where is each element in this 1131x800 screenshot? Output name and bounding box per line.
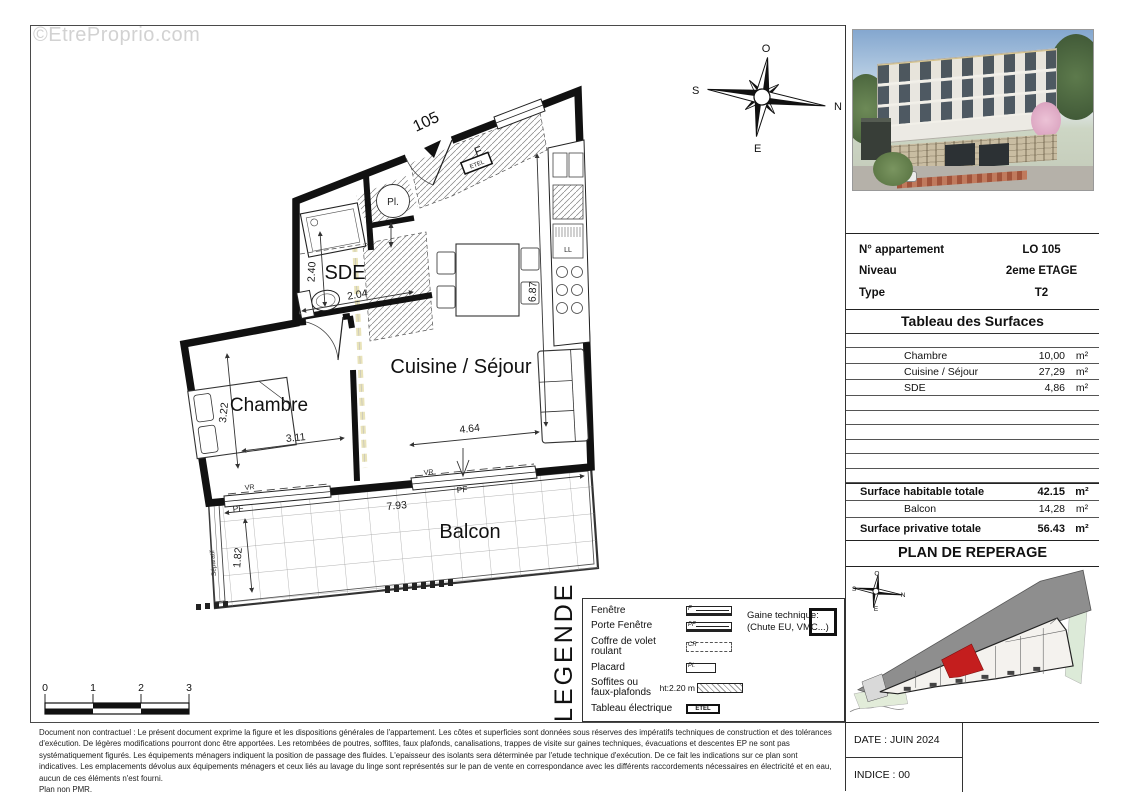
fridge	[553, 185, 583, 219]
washer: LL	[553, 224, 583, 258]
footer-left: DATE : JUIN 2024 INDICE : 00	[846, 723, 963, 792]
label-cuisine-sejour: Cuisine / Séjour	[390, 356, 532, 378]
total-unit: m²	[1065, 486, 1099, 498]
compass-rose: O N S E	[692, 43, 842, 155]
surface-unit: m²	[1065, 366, 1099, 378]
disclaimer-box: Document non contractuel : Le présent do…	[30, 722, 845, 791]
legend-label: Soffites ou faux-plafonds	[591, 678, 660, 698]
shutter-box-symbol: CR	[686, 642, 732, 652]
dim-balcon-w: 7.93	[386, 499, 408, 513]
garage-entrance	[945, 143, 975, 167]
dim-sde-h: 2.40	[305, 261, 318, 282]
symbol-letter: Pl.	[688, 663, 695, 669]
legend-item: Porte Fenêtre PF	[591, 621, 743, 631]
dining-table	[437, 244, 539, 316]
duct-symbol	[809, 608, 837, 636]
legend-box: Fenêtre F Porte Fenêtre PF Coffre de vol…	[582, 598, 845, 722]
legend-label: Porte Fenêtre	[591, 621, 686, 631]
legend-title: LEGENDE	[550, 598, 579, 722]
total-value: 56.43	[1025, 523, 1065, 535]
pink-tree	[1031, 102, 1061, 138]
total-row: Surface habitable totale 42.15 m²	[846, 483, 1099, 501]
mini-compass-s: S	[852, 586, 857, 593]
garage-entrance	[979, 143, 1009, 167]
apartment-info-table: N° appartement LO 105 Niveau 2eme ETAGE …	[846, 233, 1099, 310]
placard-label: Pl.	[387, 197, 399, 208]
surface-label: Chambre	[846, 350, 1025, 362]
surface-value: 10,00	[1025, 350, 1065, 362]
surface-value: 27,29	[1025, 366, 1065, 378]
scale-1: 1	[90, 682, 96, 694]
label-sde: SDE	[324, 262, 365, 284]
info-panel: N° appartement LO 105 Niveau 2eme ETAGE …	[845, 25, 1099, 791]
compass-o: O	[762, 43, 771, 55]
legend-item: Coffre de volet roulant CR	[591, 637, 743, 657]
info-label: Type	[846, 287, 984, 299]
table-row-empty	[846, 396, 1099, 411]
legend-label: Placard	[591, 663, 686, 673]
legend-item: Fenêtre F	[591, 606, 743, 616]
info-row: Niveau 2eme ETAGE	[846, 265, 1099, 277]
surfaces-table-title: Tableau des Surfaces	[846, 310, 1099, 334]
info-row: Type T2	[846, 287, 1099, 299]
surfaces-totals: Surface habitable totale 42.15 m² Balcon…	[846, 483, 1099, 541]
label-chambre: Chambre	[230, 395, 308, 416]
pf-chambre: PF	[232, 503, 244, 514]
site-plan: O N S E	[846, 566, 1099, 722]
surface-label: Cuisine / Séjour	[846, 366, 1025, 378]
unit-number-label: 105	[411, 109, 442, 136]
info-row: N° appartement LO 105	[846, 244, 1099, 256]
dim-sejour-h: 6.87	[526, 281, 539, 302]
dim-chambre-w: 3.11	[285, 431, 306, 445]
scale-0: 0	[42, 682, 48, 694]
vr-sejour: VR	[423, 469, 433, 477]
surface-unit: m²	[1065, 382, 1099, 394]
info-value: T2	[984, 287, 1099, 299]
total-label: Balcon	[846, 503, 1025, 515]
total-unit: m²	[1065, 503, 1099, 515]
compass-e: E	[754, 143, 761, 155]
closet-symbol: Pl.	[686, 663, 716, 673]
symbol-letter: CR	[688, 642, 697, 648]
surface-unit: m²	[1065, 350, 1099, 362]
legend-gaine: Gaine technique: (Chute EU, VMC...)	[743, 599, 844, 721]
info-label: Niveau	[846, 265, 984, 277]
table-row-empty	[846, 411, 1099, 426]
scale-2: 2	[138, 682, 144, 694]
table-row: Cuisine / Séjour 27,29 m²	[846, 364, 1099, 380]
electric-panel-symbol: ETEL	[686, 704, 720, 714]
table-row-empty	[846, 425, 1099, 440]
building-rendering	[852, 29, 1094, 191]
label-balcon: Balcon	[439, 521, 500, 543]
disclaimer-text: Document non contractuel : Le présent do…	[39, 728, 832, 783]
date-cell: DATE : JUIN 2024	[846, 723, 962, 758]
info-value: 2eme ETAGE	[984, 265, 1099, 277]
pf-sejour: PF	[456, 484, 468, 495]
legend-item: Soffites ou faux-plafonds ht:2.20 m	[591, 678, 743, 698]
legend-label: Coffre de volet roulant	[591, 637, 686, 657]
bush	[873, 152, 913, 186]
mini-compass-e: E	[874, 606, 879, 613]
table-row-empty	[846, 469, 1099, 484]
total-value: 42.15	[1025, 486, 1065, 498]
surfaces-table: Chambre 10,00 m² Cuisine / Séjour 27,29 …	[846, 333, 1099, 483]
total-row: Surface privative totale 56.43 m²	[846, 518, 1099, 541]
mini-compass-o: O	[874, 570, 879, 577]
vr-chambre: VR	[244, 484, 254, 492]
scale-3: 3	[186, 682, 192, 694]
compass-n: N	[834, 101, 842, 113]
surface-value: 4,86	[1025, 382, 1065, 394]
symbol-letter: PF	[688, 622, 696, 628]
surface-label: SDE	[846, 382, 1025, 394]
table-row-empty	[846, 333, 1099, 348]
indice-cell: INDICE : 00	[846, 758, 962, 792]
french-door-symbol: PF	[686, 622, 732, 632]
dim-sejour-w: 4.64	[459, 422, 481, 436]
total-row: Balcon 14,28 m²	[846, 501, 1099, 518]
info-label: N° appartement	[846, 244, 984, 256]
watermark: ©EtreProprio.com	[33, 24, 200, 47]
disclaimer-last-line: Plan non PMR.	[39, 784, 836, 795]
legend-note: ht:2.20 m	[660, 683, 695, 693]
window-symbol: F	[686, 606, 732, 616]
total-value: 14,28	[1025, 503, 1065, 515]
legend-item: Placard Pl.	[591, 663, 743, 673]
legend-label: Fenêtre	[591, 606, 686, 616]
title-block-footer: DATE : JUIN 2024 INDICE : 00	[846, 722, 1099, 792]
table-row: Chambre 10,00 m²	[846, 348, 1099, 364]
total-label: Surface privative totale	[846, 523, 1025, 535]
legend-label: Tableau électrique	[591, 704, 686, 714]
legend-item: Tableau électrique ETEL	[591, 704, 743, 714]
table-row: SDE 4,86 m²	[846, 380, 1099, 396]
scale-bar: 0 1 2 3	[42, 682, 192, 714]
total-unit: m²	[1065, 523, 1099, 535]
kitchen-counter: LL	[548, 140, 590, 346]
footer-empty-cell	[963, 723, 1099, 792]
reperage-map: O N S E	[846, 566, 1099, 722]
building-facade	[877, 48, 1057, 144]
info-value: LO 105	[984, 244, 1099, 256]
table-row-empty	[846, 440, 1099, 455]
mini-compass: O N S E	[851, 570, 906, 613]
dim-balcon-h: 1.82	[231, 547, 245, 569]
table-row-empty	[846, 454, 1099, 469]
mini-compass-n: N	[901, 592, 906, 599]
symbol-letter: F	[688, 606, 692, 612]
legend-items: Fenêtre F Porte Fenêtre PF Coffre de vol…	[583, 599, 743, 721]
total-label: Surface habitable totale	[846, 486, 1025, 498]
compass-s: S	[692, 85, 699, 97]
reperage-title: PLAN DE REPERAGE	[846, 541, 1099, 567]
chambre-door	[306, 317, 343, 360]
svg-text:LL: LL	[564, 247, 572, 254]
soffit-symbol	[697, 683, 743, 693]
